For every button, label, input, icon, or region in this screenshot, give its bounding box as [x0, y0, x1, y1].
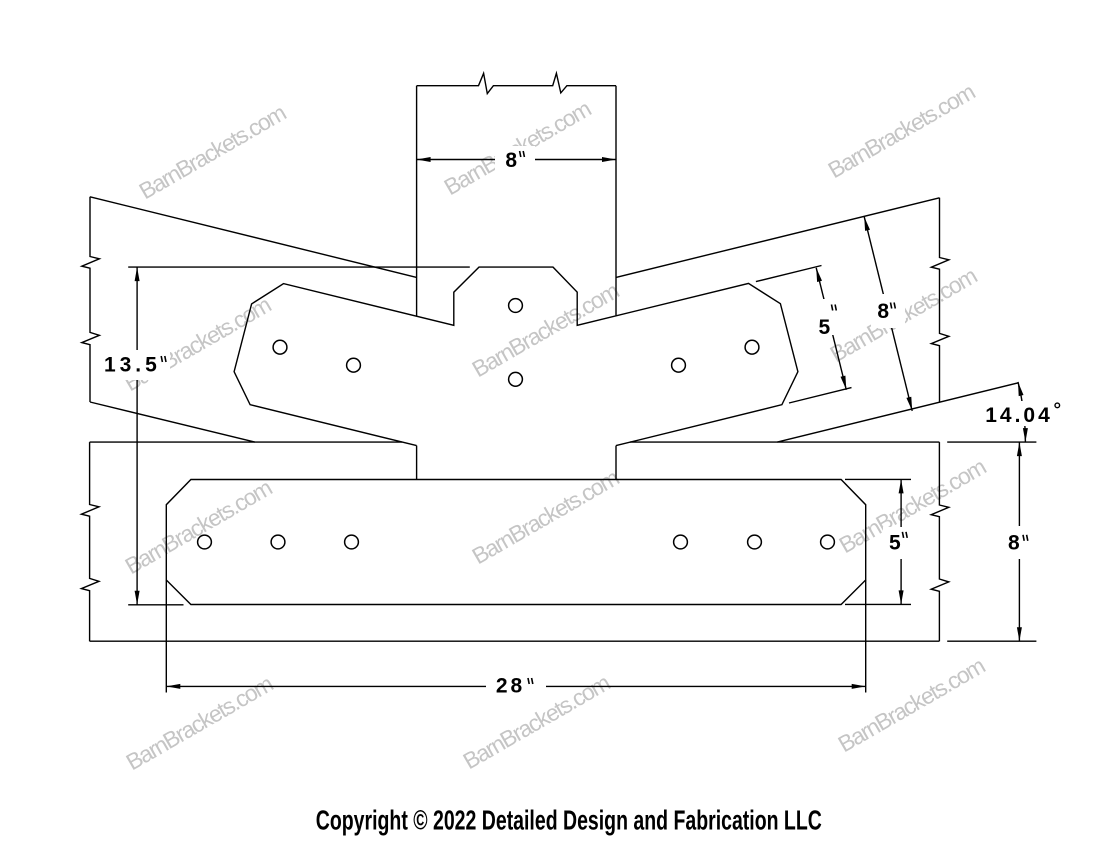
svg-text:13.5: 13.5 [104, 354, 161, 377]
svg-text:Copyright © 2022 Detailed Desi: Copyright © 2022 Detailed Design and Fab… [316, 805, 822, 836]
svg-text:28: 28 [496, 675, 525, 698]
svg-text:8: 8 [1008, 531, 1020, 554]
svg-text:8: 8 [505, 149, 517, 172]
svg-text:8: 8 [877, 300, 889, 323]
svg-text:14.04: 14.04 [985, 404, 1053, 427]
svg-text:5: 5 [818, 316, 830, 339]
svg-text:5: 5 [889, 531, 901, 554]
